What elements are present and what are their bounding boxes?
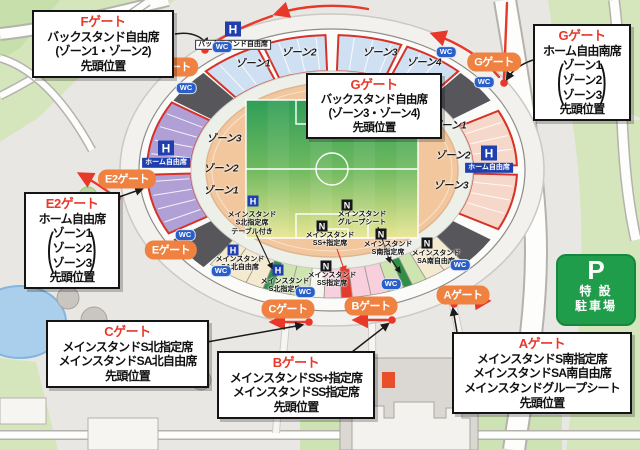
callout-title: Fゲート [37, 14, 169, 30]
gate-label-g: Gゲート [467, 53, 521, 72]
parking-sign: P 特 設 駐車場 [556, 254, 636, 326]
c-gate-callout: Cゲート メインスタンドS北指定席 メインスタンドSA北自由席 先頭位置 [46, 320, 209, 388]
wc-icon: WC [474, 76, 495, 88]
zone-label: ゾーン1 [235, 55, 270, 70]
gate-label-e: Eゲート [145, 241, 197, 260]
b-gate-callout: Bゲート メインスタンドSS+指定席 メインスタンドSS指定席 先頭位置 [217, 351, 375, 419]
seat-label-ss: メインスタンドSS指定席 [308, 272, 357, 289]
zone-label: ゾーン2 [203, 160, 238, 175]
gate-label-b: Bゲート [345, 297, 398, 316]
callout-title: Bゲート [222, 355, 370, 371]
home-right-letter: H [481, 146, 497, 161]
wc-icon: WC [176, 82, 197, 94]
callout-title: Aゲート [457, 336, 627, 352]
wc-icon: WC [381, 278, 402, 290]
zone-label: ゾーン3 [433, 177, 468, 192]
paren-close-glyph: ) [600, 61, 607, 101]
zone-label: ゾーン2 [435, 147, 470, 162]
seat-letter-h: H [228, 245, 239, 256]
callout-title: Gゲート [538, 28, 626, 44]
g-gate-callout: Gゲート ホーム自由南席 ( ゾーン1 ゾーン2 ゾーン3 ) 先頭位置 [533, 24, 631, 121]
seat-label-ss-plus: メインスタンドSS+指定席 [306, 232, 355, 249]
seat-letter-h: H [248, 196, 259, 207]
parking-icon: P [558, 257, 634, 284]
home-right-label: ホーム自由席 [465, 163, 513, 173]
callout-title: Gゲート [311, 77, 437, 93]
seat-letter-n: N [321, 261, 332, 272]
callout-title: Cゲート [51, 324, 204, 340]
seat-letter-n: N [422, 238, 433, 249]
station-marker [382, 372, 395, 388]
f-gate-callout: Fゲート バックスタンド自由席 (ゾーン1・ゾーン2) 先頭位置 [32, 10, 174, 78]
zone-label: ゾーン2 [281, 44, 316, 59]
home-left-label: ホーム自由席 [142, 158, 190, 168]
seat-label-s-south: メインスタンドS南指定席 [364, 241, 413, 258]
gate-label-a: Aゲート [437, 286, 490, 305]
wc-icon: WC [295, 286, 316, 298]
zone-label: ゾーン3 [362, 44, 397, 59]
back-stand-label: バックスタンド自由席 [195, 40, 271, 50]
gate-label-c: Cゲート [262, 300, 315, 319]
seat-label-group-seat: メインスタンドグループシート [338, 211, 387, 228]
zone-label: ゾーン1 [203, 182, 238, 197]
wc-icon: WC [175, 229, 196, 241]
wc-icon: WC [436, 46, 457, 58]
zone-list: ( ゾーン1 ゾーン2 ゾーン3 ) [29, 226, 115, 270]
callout-title: E2ゲート [29, 196, 115, 212]
seat-letter-n: N [317, 221, 328, 232]
wc-icon: WC [450, 259, 471, 271]
zone-list: ( ゾーン1 ゾーン2 ゾーン3 ) [538, 58, 626, 102]
wc-icon: WC [212, 41, 233, 53]
paren-close-glyph: ) [90, 229, 97, 269]
seat-letter-n: N [376, 229, 387, 240]
home-left-letter: H [158, 141, 174, 156]
paren-open-glyph: ( [47, 229, 54, 269]
gate-label-e2: E2ゲート [98, 170, 156, 189]
stadium-map: Fゲート バックスタンド自由席 (ゾーン1・ゾーン2) 先頭位置 Gゲート ホー… [0, 0, 640, 450]
seat-label-s-north-table: メインスタンドS北指定席テーブル付き [228, 212, 277, 237]
wc-icon: WC [211, 265, 232, 277]
e2-gate-callout: E2ゲート ホーム自由席 ( ゾーン1 ゾーン2 ゾーン3 ) 先頭位置 [24, 192, 120, 289]
seat-letter-h: H [273, 265, 284, 276]
g-gate-center-callout: Gゲート バックスタンド自由席 (ゾーン3・ゾーン4) 先頭位置 [306, 73, 442, 139]
paren-open-glyph: ( [557, 61, 564, 101]
zone-label: ゾーン3 [206, 130, 241, 145]
a-gate-callout: Aゲート メインスタンドS南指定席 メインスタンドSA南自由席 メインスタンドグ… [452, 332, 632, 414]
seat-letter-n: N [342, 200, 353, 211]
back-stand-letter: H [225, 22, 241, 37]
